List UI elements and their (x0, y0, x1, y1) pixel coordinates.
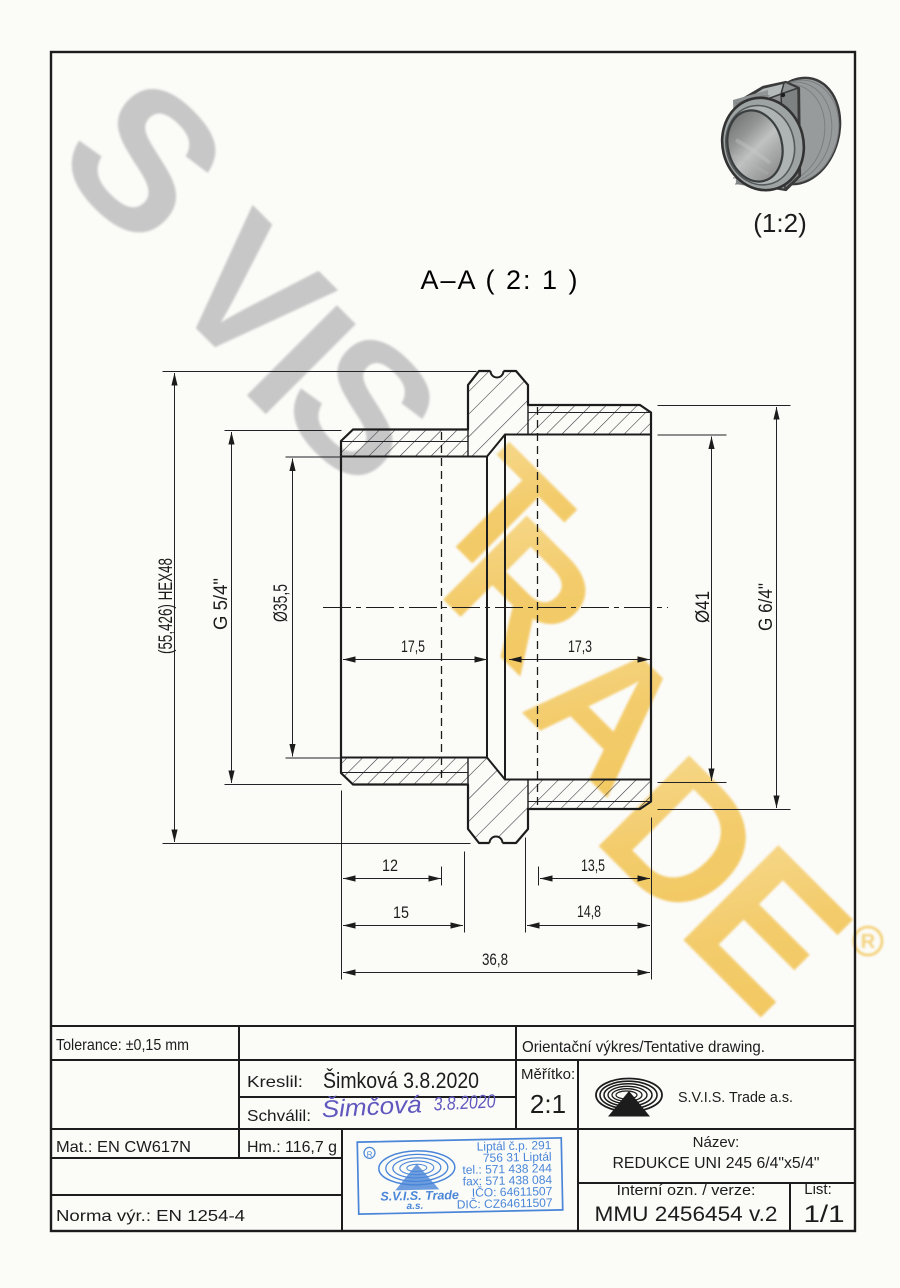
svg-text:R: R (861, 931, 876, 953)
svg-text:17,3: 17,3 (568, 638, 592, 656)
svg-text:REDUKCE UNI 245 6/4"x5/4": REDUKCE UNI 245 6/4"x5/4" (613, 1155, 820, 1172)
svg-text:(1:2): (1:2) (753, 208, 806, 238)
svg-text:Šimková 3.8.2020: Šimková 3.8.2020 (323, 1068, 479, 1093)
svg-text:Schválil:: Schválil: (247, 1108, 311, 1125)
svg-text:R: R (367, 1150, 373, 1159)
svg-text:Kreslil:: Kreslil: (247, 1074, 303, 1091)
svg-text:Norma výr.: EN 1254-4: Norma výr.: EN 1254-4 (56, 1208, 245, 1225)
svg-text:A–A ( 2: 1 ): A–A ( 2: 1 ) (420, 265, 579, 295)
svg-text:S.V.I.S. Trade a.s.: S.V.I.S. Trade a.s. (678, 1089, 793, 1106)
svg-text:15: 15 (393, 904, 409, 922)
svg-text:1/1: 1/1 (804, 1201, 845, 1228)
svg-text:36,8: 36,8 (482, 951, 508, 969)
svg-text:Ø41: Ø41 (693, 591, 714, 623)
svg-text:a.s.: a.s. (407, 1201, 424, 1212)
svg-text:12: 12 (382, 857, 398, 875)
svg-text:MMU 2456454 v.2: MMU 2456454 v.2 (595, 1202, 778, 1226)
svg-text:DIČ: CZ64611507: DIČ: CZ64611507 (457, 1195, 553, 1212)
svg-text:14,8: 14,8 (577, 903, 601, 921)
svg-text:G 5/4": G 5/4" (211, 578, 232, 630)
svg-text:G 6/4": G 6/4" (756, 583, 777, 631)
svg-text:Měřítko:: Měřítko: (521, 1066, 575, 1083)
svg-text:(55,426) HEX48: (55,426) HEX48 (156, 558, 177, 654)
svg-text:List:: List: (804, 1181, 832, 1198)
svg-text:Interní ozn. / verze:: Interní ozn. / verze: (617, 1182, 756, 1199)
svg-text:Tolerance: ±0,15 mm: Tolerance: ±0,15 mm (56, 1037, 189, 1054)
svg-text:17,5: 17,5 (401, 638, 425, 656)
svg-text:Šimčová: Šimčová (321, 1090, 422, 1123)
svg-text:Ø35,5: Ø35,5 (271, 584, 292, 622)
svg-text:Název:: Název: (693, 1134, 740, 1151)
svg-text:13,5: 13,5 (581, 857, 605, 875)
svg-text:Mat.: EN CW617N: Mat.: EN CW617N (56, 1139, 191, 1156)
svg-text:2:1: 2:1 (530, 1089, 566, 1119)
svg-text:Hm.: 116,7 g: Hm.: 116,7 g (247, 1139, 337, 1156)
svg-text:Orientační výkres/Tentative dr: Orientační výkres/Tentative drawing. (522, 1039, 765, 1056)
svg-text:3.8.2020: 3.8.2020 (433, 1091, 496, 1115)
